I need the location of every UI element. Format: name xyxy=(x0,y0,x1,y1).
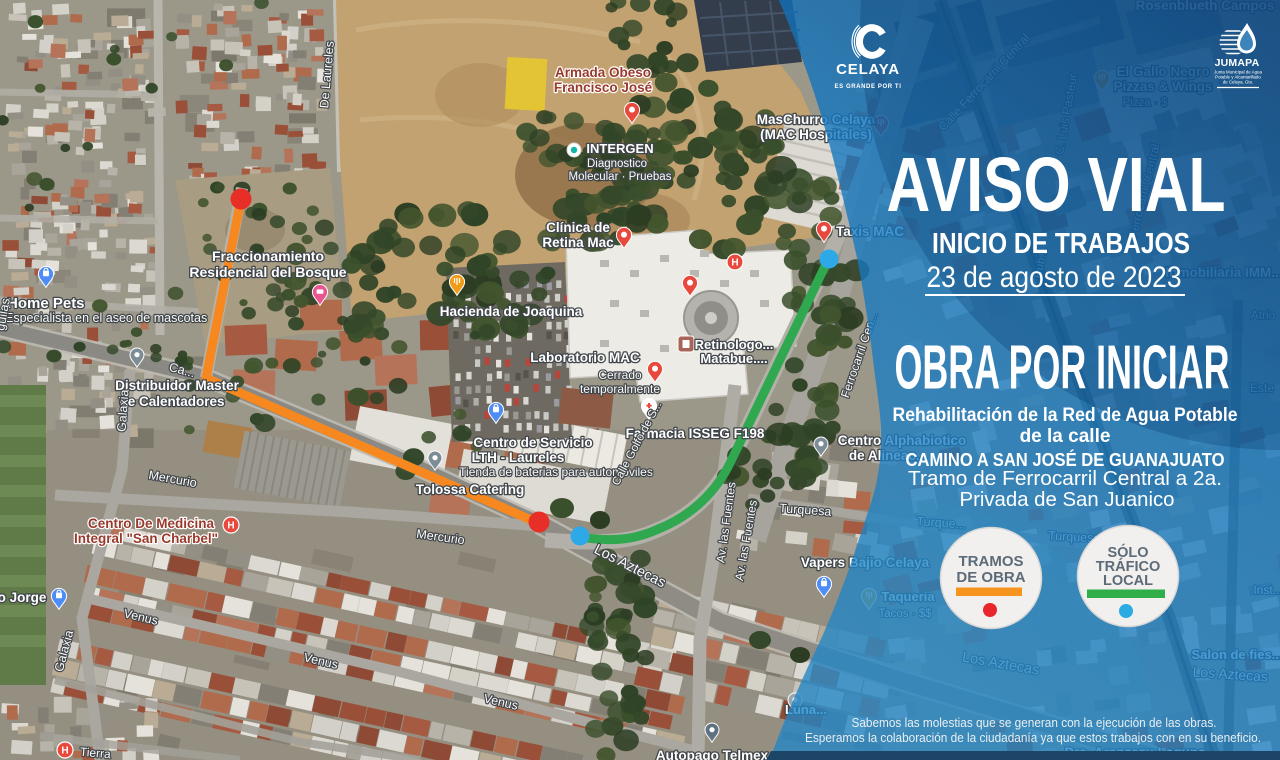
svg-text:H: H xyxy=(731,257,738,268)
svg-text:Retina Mac: Retina Mac xyxy=(542,235,614,250)
svg-text:ES GRANDE POR TI: ES GRANDE POR TI xyxy=(835,84,902,90)
svg-text:temporalmente: temporalmente xyxy=(580,382,660,396)
svg-text:Tierra: Tierra xyxy=(79,745,111,760)
svg-text:TRAMOS: TRAMOS xyxy=(959,553,1024,570)
svg-text:de la calle: de la calle xyxy=(1020,426,1111,447)
svg-text:Residencial del Bosque: Residencial del Bosque xyxy=(189,264,346,280)
svg-text:AVISO VIAL: AVISO VIAL xyxy=(887,142,1226,228)
svg-text:Centro de Servicio: Centro de Servicio xyxy=(473,435,592,450)
svg-text:DE OBRA: DE OBRA xyxy=(956,569,1025,586)
svg-text:Hacienda de Joaquina: Hacienda de Joaquina xyxy=(440,304,583,319)
svg-text:Rehabilitación de la Red de Ag: Rehabilitación de la Red de Agua Potable xyxy=(893,405,1238,426)
svg-text:Laboratorio MAC: Laboratorio MAC xyxy=(530,350,640,365)
svg-text:Sabemos las molestias que se g: Sabemos las molestias que se generan con… xyxy=(852,715,1217,730)
svg-text:Diagnostico: Diagnostico xyxy=(587,158,647,170)
svg-text:Tramo de Ferrocarril Central a: Tramo de Ferrocarril Central a 2a. xyxy=(908,467,1222,490)
svg-text:INICIO DE TRABAJOS: INICIO DE TRABAJOS xyxy=(932,228,1190,260)
svg-text:Tolossa Catering: Tolossa Catering xyxy=(416,482,525,497)
svg-text:Cerrado: Cerrado xyxy=(598,368,642,382)
svg-text:Armada Obeso: Armada Obeso xyxy=(555,65,651,80)
svg-text:Autopago Telmex: Autopago Telmex xyxy=(656,748,769,760)
svg-text:Integral "San Charbel": Integral "San Charbel" xyxy=(74,531,218,546)
svg-text:o Jorge: o Jorge xyxy=(0,590,47,605)
svg-text:23 de agosto de 2023: 23 de agosto de 2023 xyxy=(927,261,1182,294)
svg-text:Home Pets: Home Pets xyxy=(7,295,85,312)
svg-text:LOCAL: LOCAL xyxy=(1103,573,1153,589)
svg-text:Fraccionamiento: Fraccionamiento xyxy=(212,248,324,264)
svg-text:JUMAPA: JUMAPA xyxy=(1215,57,1260,69)
svg-text:CELAYA: CELAYA xyxy=(836,61,900,78)
svg-text:de Celaya, Gto.: de Celaya, Gto. xyxy=(1223,80,1254,85)
svg-text:LTH - Laureles: LTH - Laureles xyxy=(472,450,565,465)
svg-text:INTERGEN: INTERGEN xyxy=(586,141,653,156)
svg-text:Molecular · Pruebas: Molecular · Pruebas xyxy=(569,171,672,183)
svg-text:OBRA POR INICIAR: OBRA POR INICIAR xyxy=(895,334,1230,403)
svg-text:Clínica de: Clínica de xyxy=(546,220,610,235)
svg-text:Matabue....: Matabue.... xyxy=(700,351,767,366)
svg-text:Centro De Medicina: Centro De Medicina xyxy=(88,516,215,531)
svg-text:Especialista en el aseo de mas: Especialista en el aseo de mascotas xyxy=(5,311,207,325)
svg-text:Esperamos la colaboración de l: Esperamos la colaboración de la ciudadan… xyxy=(805,730,1261,745)
svg-text:Privada de San Juanico: Privada de San Juanico xyxy=(960,488,1175,511)
svg-text:H: H xyxy=(61,745,68,756)
svg-text:H: H xyxy=(227,520,234,531)
svg-text:Galaxia: Galaxia xyxy=(115,389,132,432)
svg-text:Francisco José: Francisco José xyxy=(554,80,653,95)
svg-text:de Calentadores: de Calentadores xyxy=(119,394,224,409)
svg-text:Retinologo...: Retinologo... xyxy=(695,337,774,352)
svg-text:Distribuidor Master: Distribuidor Master xyxy=(115,378,240,393)
